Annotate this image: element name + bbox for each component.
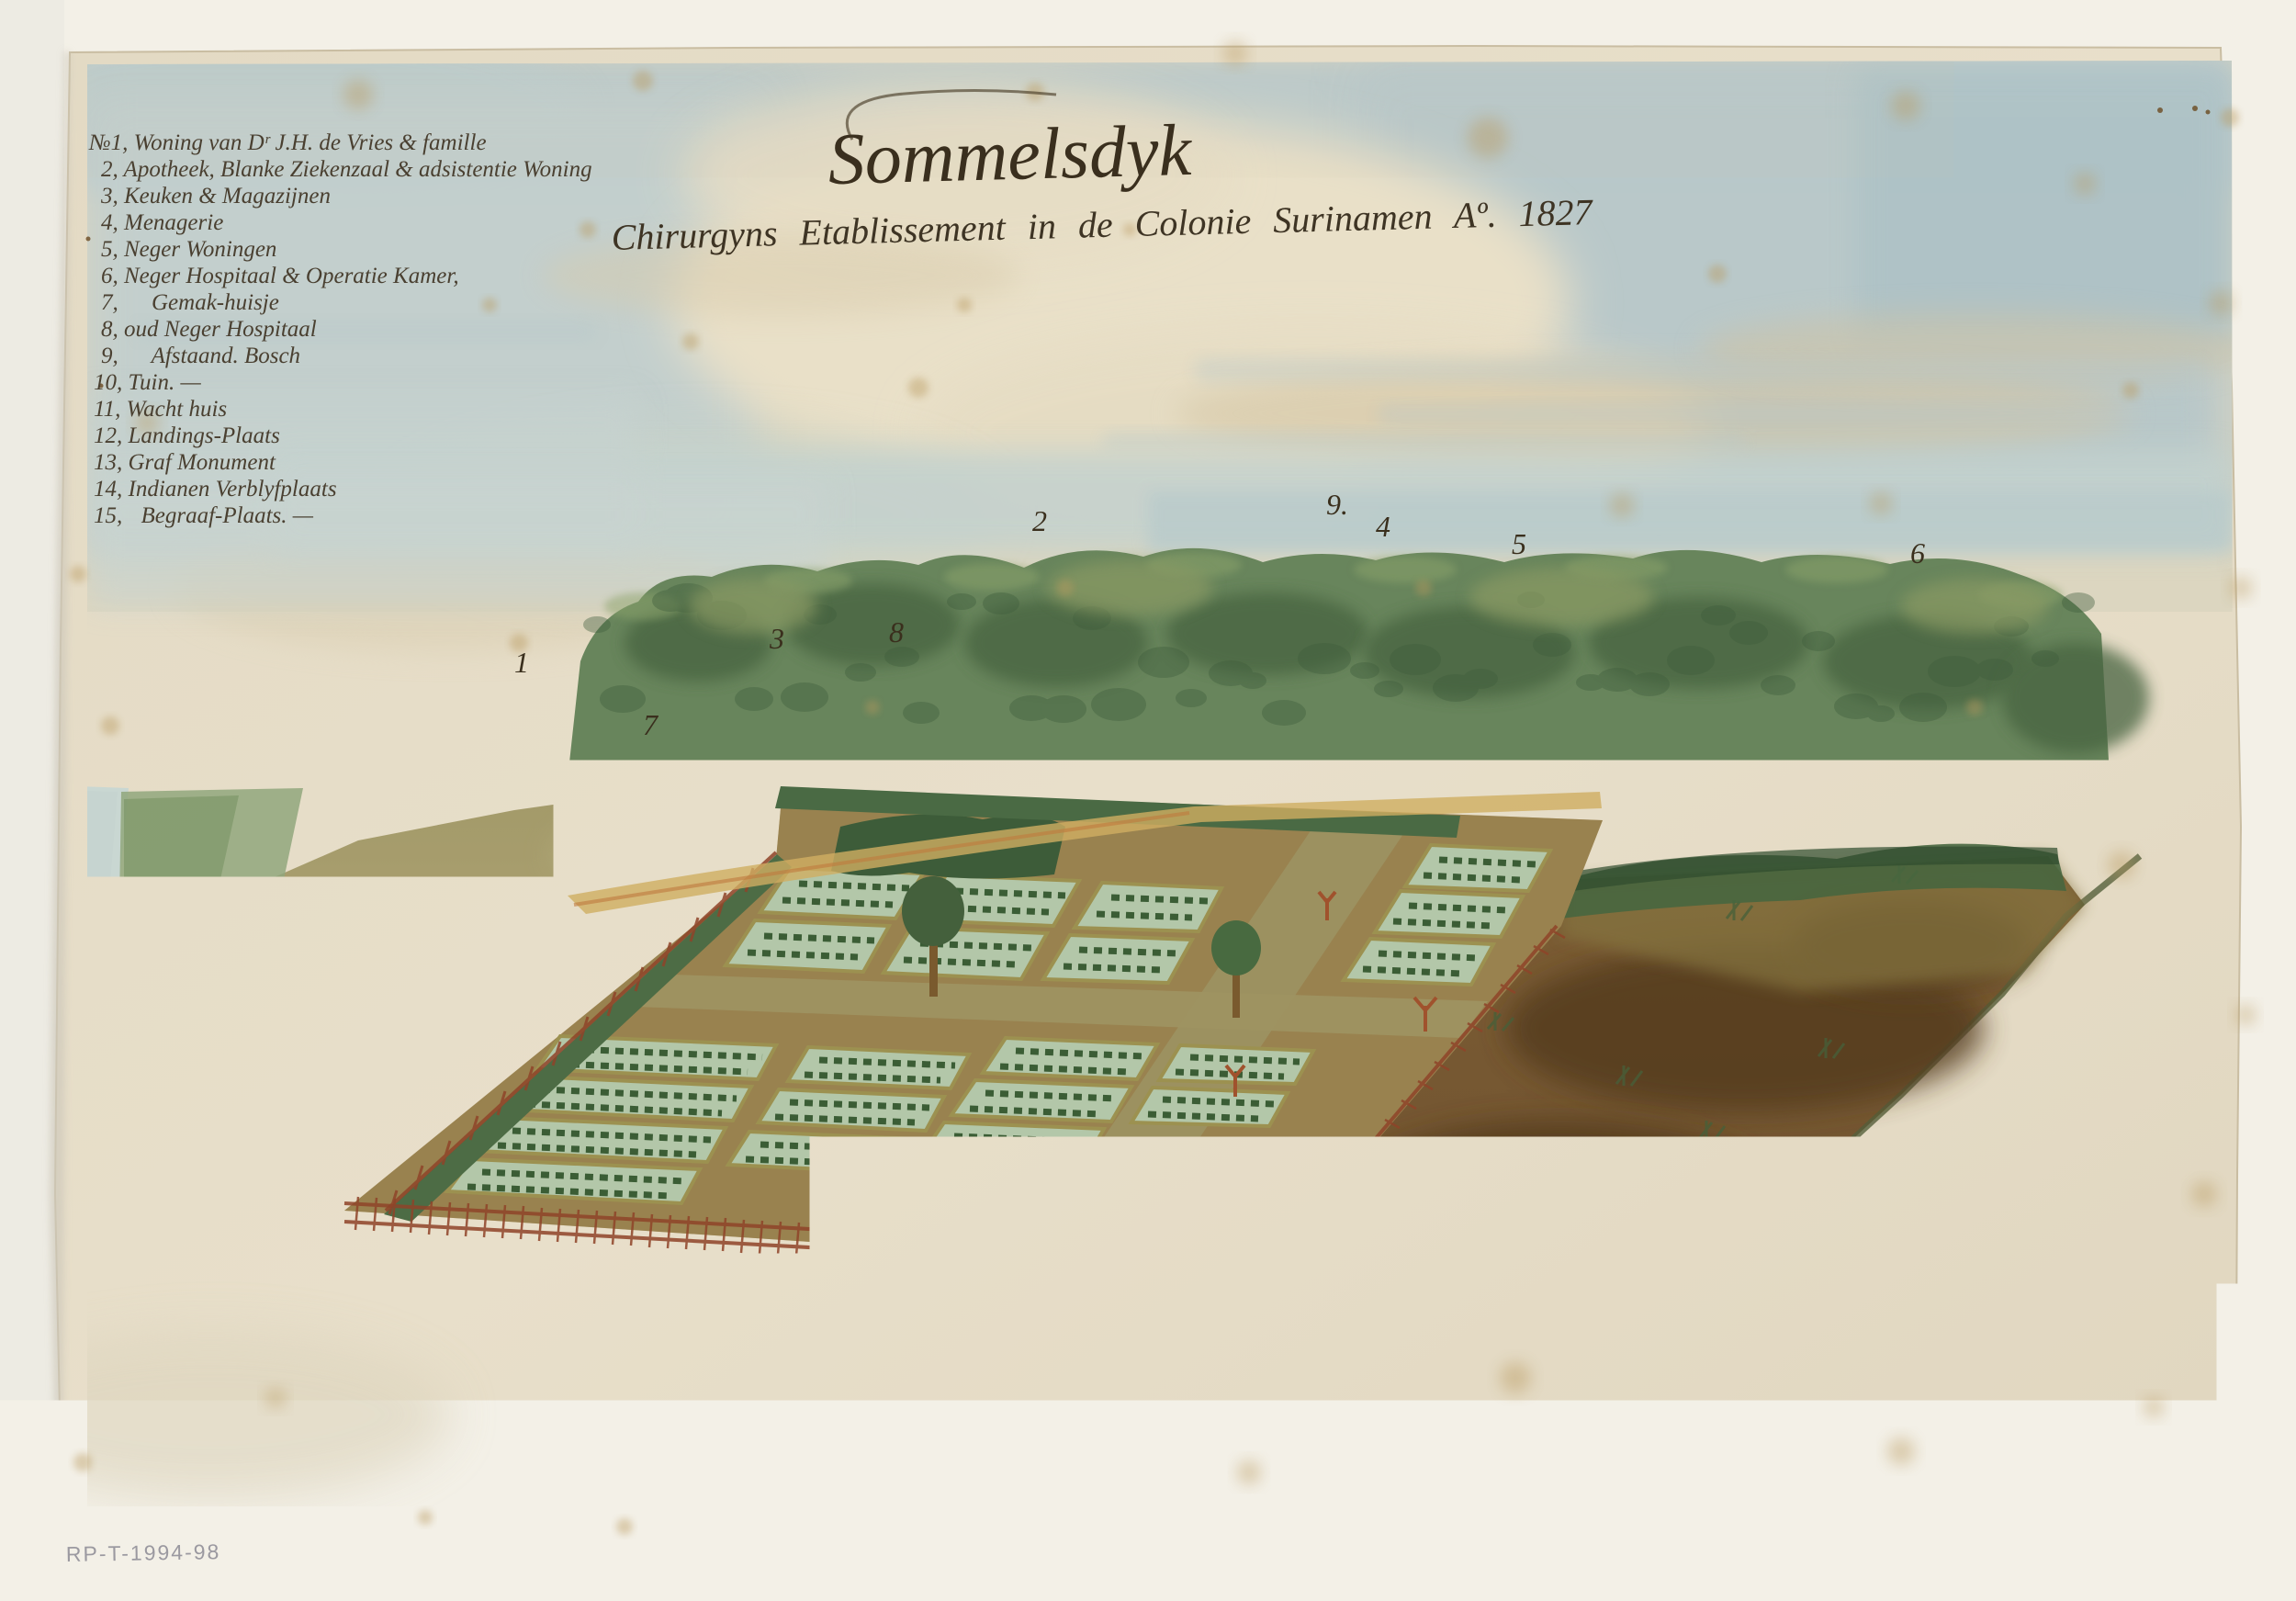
svg-text:8: 8: [889, 615, 904, 648]
svg-text:6: 6: [1910, 536, 1925, 569]
svg-text:11.: 11.: [235, 1082, 270, 1115]
svg-text:Sommelsdyk: Sommelsdyk: [827, 110, 1194, 200]
svg-text:10: 10: [643, 951, 672, 984]
svg-text:13: 13: [846, 1156, 875, 1189]
svg-text:8, oud Neger Hospitaal: 8, oud Neger Hospitaal: [101, 317, 317, 342]
svg-text:2: 2: [1032, 504, 1047, 537]
svg-text:2, Apotheek, Blanke Ziekenzaal: 2, Apotheek, Blanke Ziekenzaal & adsiste…: [101, 157, 592, 182]
svg-text:RP-T-1994-98: RP-T-1994-98: [66, 1539, 221, 1566]
svg-text:6, Neger Hospitaal & Operatie: 6, Neger Hospitaal & Operatie Kamer,: [101, 264, 459, 288]
svg-text:12, Landings-Plaats: 12, Landings-Plaats: [94, 423, 280, 448]
svg-text:11, Wacht huis: 11, Wacht huis: [94, 397, 227, 422]
svg-text:15: 15: [2195, 709, 2224, 742]
svg-text:9.: 9.: [1326, 488, 1348, 521]
svg-text:3, Keuken & Magazijnen: 3, Keuken & Magazijnen: [100, 184, 331, 209]
svg-text:13, Graf Monument: 13, Graf Monument: [94, 450, 276, 475]
svg-text:14: 14: [1490, 789, 1519, 822]
svg-text:7: 7: [643, 708, 659, 741]
svg-text:12: 12: [134, 1194, 163, 1227]
svg-text:Cottica: Cottica: [90, 884, 162, 915]
svg-text:3: 3: [769, 622, 784, 655]
svg-text:10, Tuin. —: 10, Tuin. —: [94, 370, 201, 395]
svg-text:15, Begraaf-Plaats. —: 15, Begraaf-Plaats. —: [94, 503, 314, 528]
svg-text:5, Neger Woningen: 5, Neger Woningen: [101, 237, 276, 262]
svg-text:№1, Woning van Dʳ J.H. de Vrie: №1, Woning van Dʳ J.H. de Vries & famill…: [88, 130, 487, 155]
svg-text:4: 4: [1376, 510, 1390, 543]
svg-text:14, Indianen Verblyfplaats: 14, Indianen Verblyfplaats: [94, 477, 337, 502]
svg-text:4, Menagerie: 4, Menagerie: [101, 210, 223, 235]
svg-text:1: 1: [514, 646, 529, 679]
svg-text:5: 5: [1512, 527, 1526, 560]
